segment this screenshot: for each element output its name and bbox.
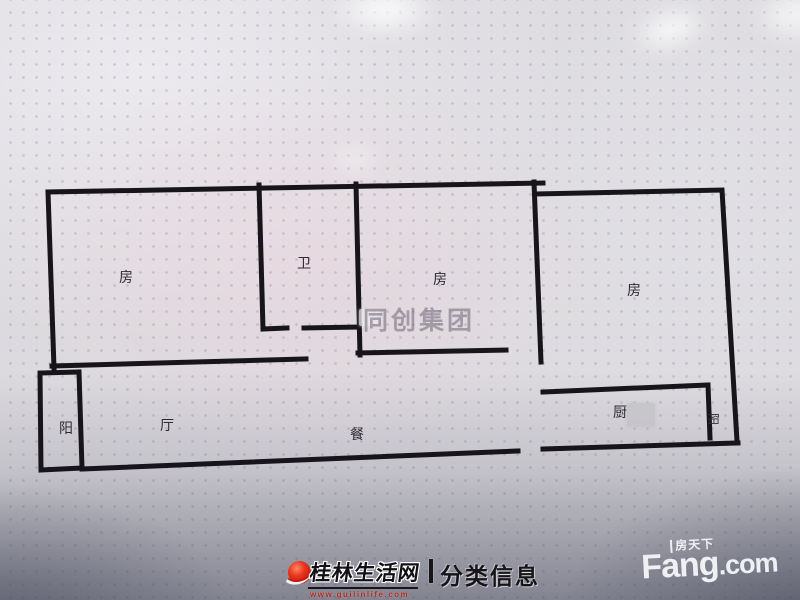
watermark-text: 同创集团 (363, 301, 475, 337)
erased-watermark-patch (627, 403, 655, 427)
room-label-balcony-right: 阳 (707, 413, 719, 425)
room-label-bedroom-left: 房 (119, 270, 133, 284)
floorplan-walls (0, 0, 800, 600)
room-label-hall: 厅 (160, 418, 174, 432)
room-label-kitchen: 厨 (613, 405, 627, 419)
room-label-bedroom-middle: 房 (433, 272, 447, 286)
room-label-balcony-left: 阳 (59, 421, 73, 435)
room-label-dining: 餐 (350, 427, 364, 441)
room-label-bathroom: 卫 (297, 256, 311, 270)
room-label-bedroom-right: 房 (627, 283, 641, 297)
floorplan-photo: 房 卫 房 房 阳 厅 餐 厨 阳 同创集团 桂林生活网 (0, 0, 800, 600)
